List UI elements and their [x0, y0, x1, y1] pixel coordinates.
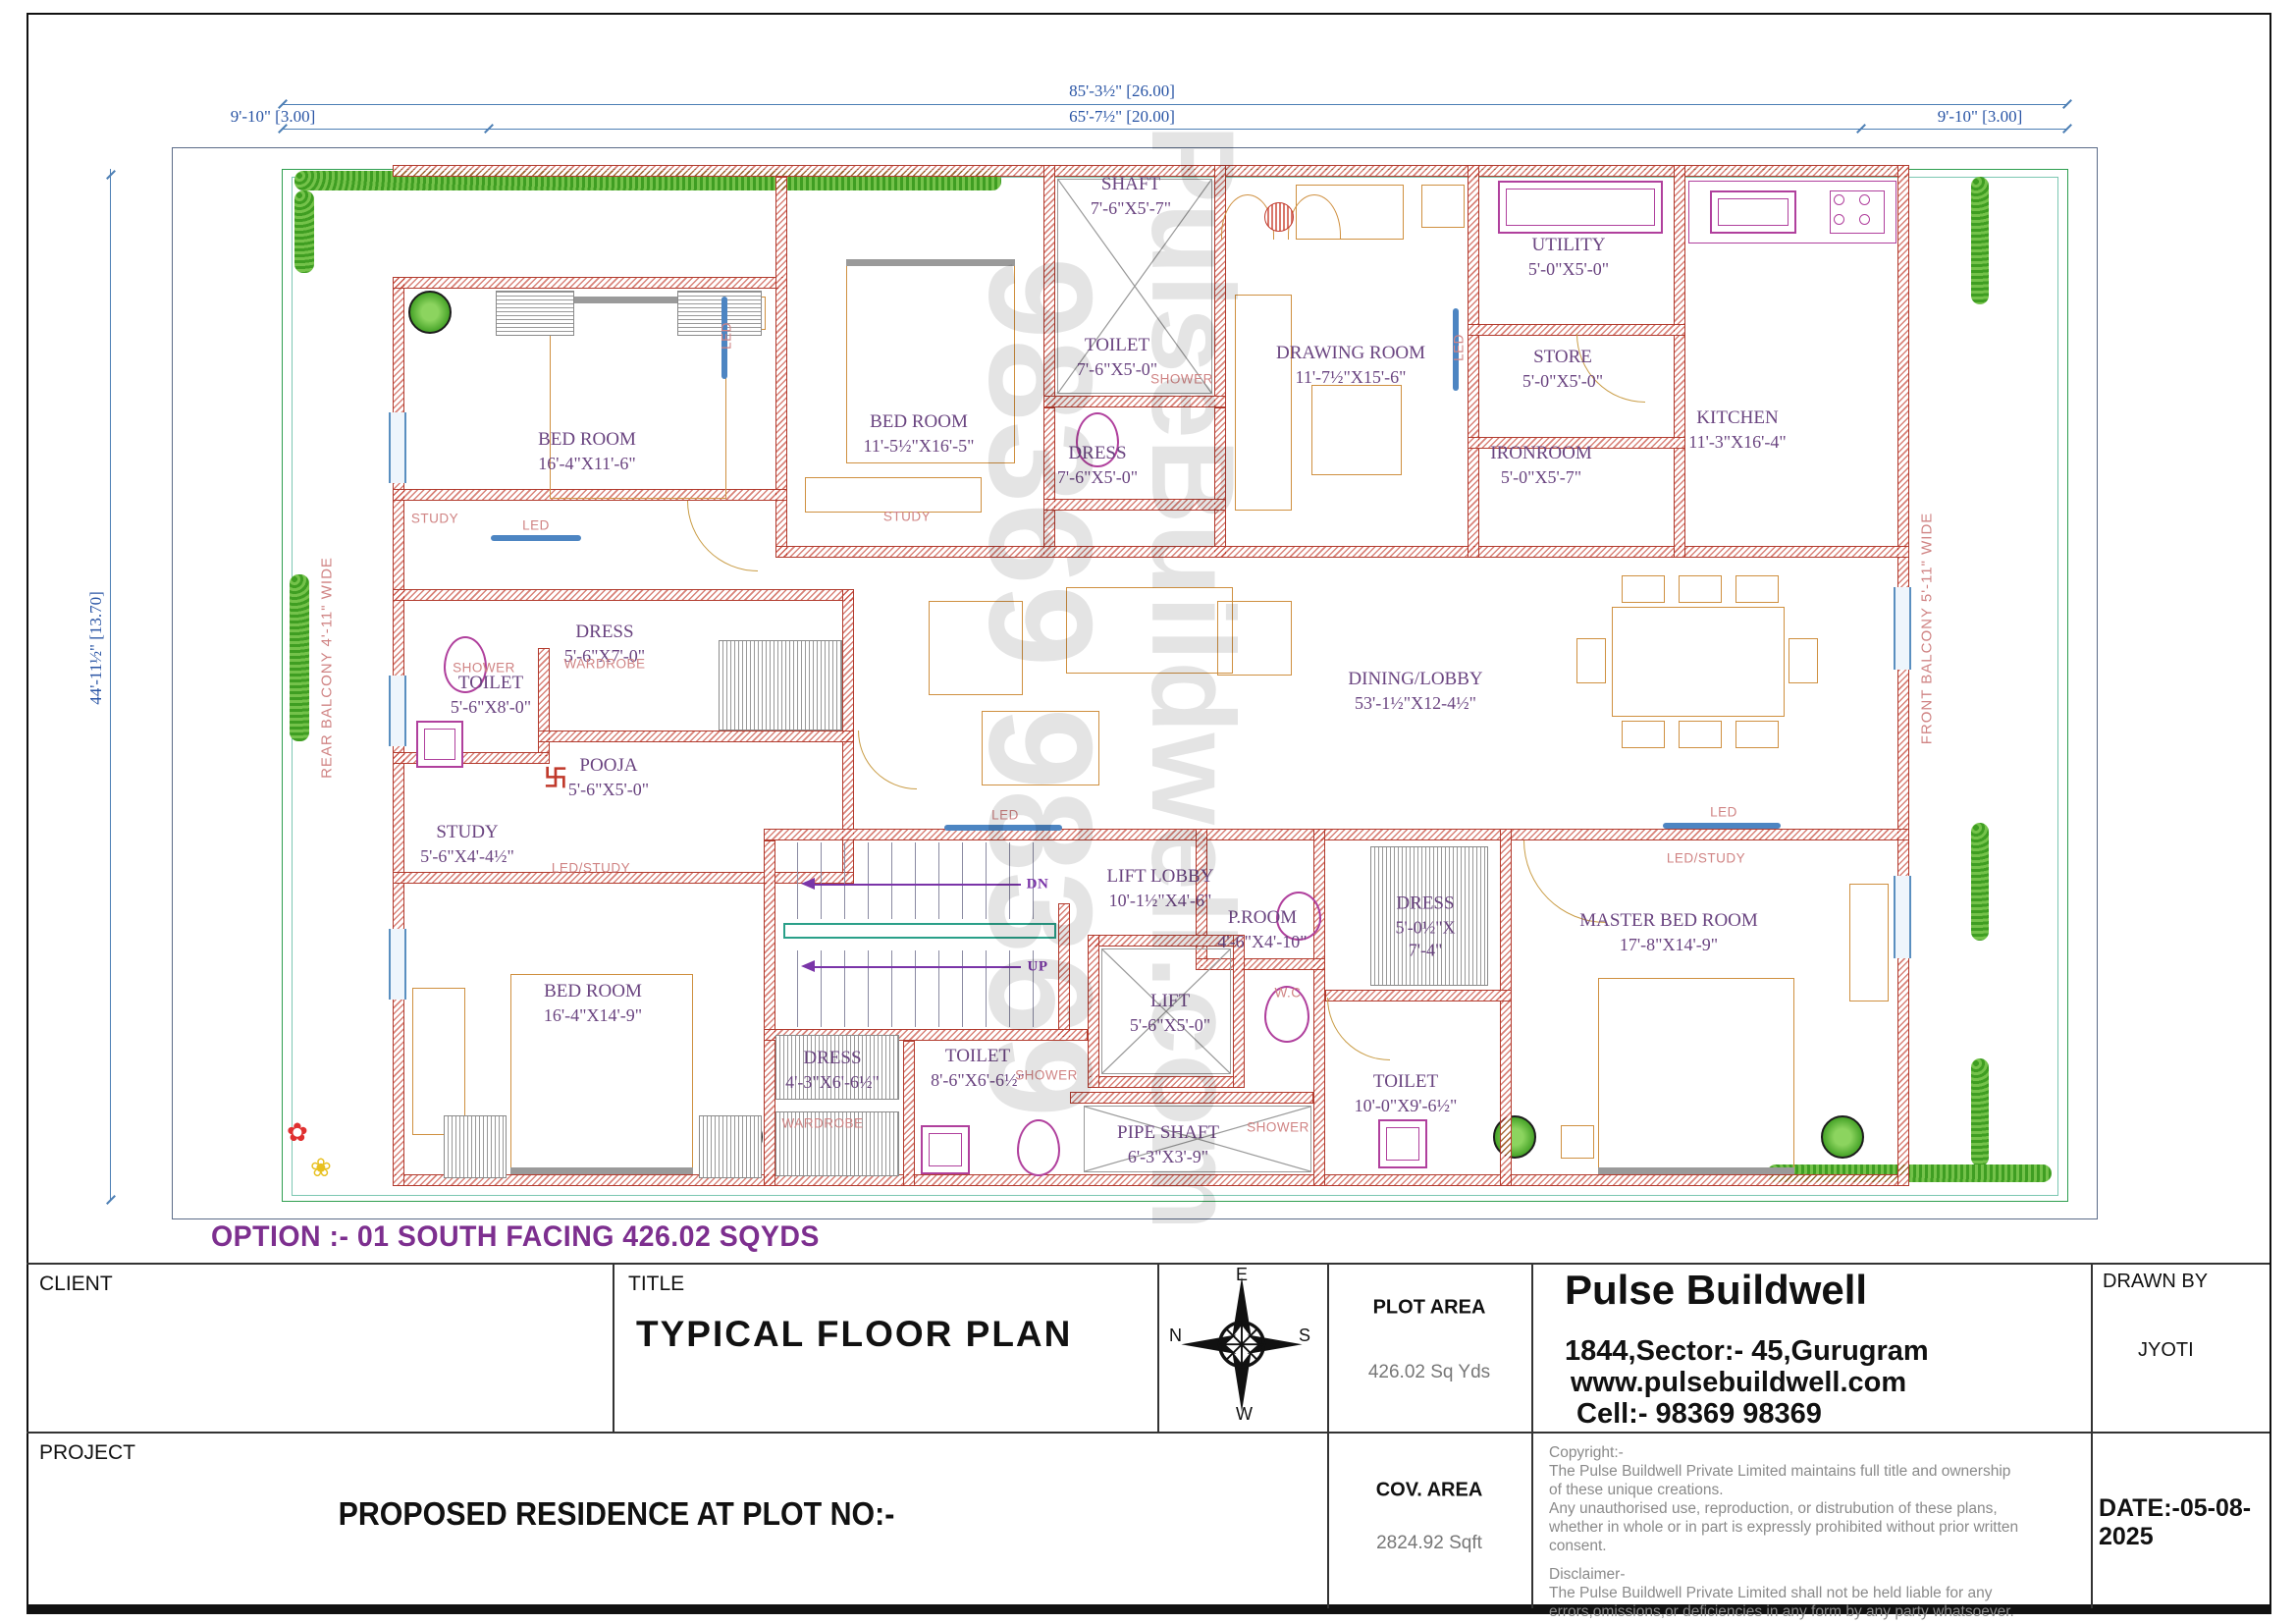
dim-line-top-outer — [282, 104, 2066, 105]
copyright-text: Copyright:-The Pulse Buildwell Private L… — [1549, 1443, 2079, 1621]
room-label: SHAFT7'-6"X5'-7" — [1091, 173, 1171, 220]
dimension-text: 85'-3½" [26.00] — [1069, 81, 1175, 101]
wall-segment — [1058, 903, 1070, 1037]
furniture — [1421, 185, 1465, 228]
dim-tick-v1 — [106, 1195, 116, 1205]
fixture-label: SHOWER — [453, 661, 515, 676]
wall-segment — [1088, 1076, 1245, 1088]
room-label: TOILET5'-6"X8'-0" — [451, 672, 531, 719]
hob-burner — [1859, 214, 1870, 225]
room-label: BED ROOM16'-4"X11'-6" — [538, 428, 636, 475]
fixture-label: LED — [1452, 334, 1467, 361]
drawn-by-label: DRAWN BY — [2103, 1271, 2208, 1293]
compass-star-icon — [1173, 1269, 1310, 1426]
stairs-up-label: UP — [1028, 959, 1048, 976]
stair-tread — [938, 842, 939, 919]
fixture-label: WARDROBE — [563, 657, 645, 672]
window — [389, 676, 406, 746]
project-label: PROJECT — [39, 1441, 135, 1465]
window — [389, 412, 406, 483]
stair-tread — [797, 950, 798, 1027]
stair-tread — [938, 950, 939, 1027]
stair-tread — [986, 950, 987, 1027]
bed-headboard — [1598, 1167, 1794, 1174]
hob-burner — [1834, 194, 1844, 205]
cov-area-value: 2824.92 Sqft — [1376, 1533, 1482, 1554]
room-label: STORE5'-0"X5'-0" — [1522, 346, 1603, 393]
stair-arrow-head — [801, 960, 815, 972]
dimension-text: 44'-11½" [13.70] — [86, 591, 106, 705]
fixture-label: LED/STUDY — [552, 861, 630, 876]
copyright-line: Copyright:- — [1549, 1443, 2079, 1462]
hedge-strip — [1971, 177, 1989, 304]
rear-balcony-label: REAR BALCONY 4'-11" WIDE — [319, 557, 336, 779]
tb-mid-line — [27, 1432, 2269, 1434]
stair-tread — [915, 842, 916, 919]
stair-tread — [868, 950, 869, 1027]
wash-basin — [1378, 1119, 1427, 1168]
drawn-by-value: JYOTI — [2138, 1339, 2194, 1362]
stairs-dn-label: DN — [1027, 877, 1049, 893]
stair-tread — [1009, 950, 1010, 1027]
dimension-text: 65'-7½" [20.00] — [1069, 107, 1175, 127]
tb-div3 — [1327, 1263, 1329, 1608]
furniture — [982, 711, 1099, 785]
room-label: DRAWING ROOM11'-7½"X15'-6" — [1276, 342, 1425, 389]
window — [389, 929, 406, 1000]
copyright-line: Any unauthorised use, reproduction, or d… — [1549, 1499, 2079, 1518]
compass-w: W — [1236, 1404, 1253, 1425]
fixture-label: LED — [991, 808, 1019, 823]
title-block: CLIENT TITLE TYPICAL FLOOR PLAN E S W N … — [0, 1263, 2296, 1608]
room-label: LIFT5'-6"X5'-0" — [1130, 990, 1210, 1037]
room-label: STUDY5'-6"X4'-4½" — [420, 821, 514, 868]
dimension-text: 9'-10" [3.00] — [1938, 107, 2023, 127]
tree-icon — [1821, 1115, 1864, 1159]
room-label: TOILET10'-0"X9'-6½" — [1355, 1070, 1458, 1117]
front-balcony-label: FRONT BALCONY 5'-11" WIDE — [1919, 513, 1936, 745]
tree-icon — [408, 291, 452, 334]
stair-tread — [844, 842, 845, 919]
project-value: PROPOSED RESIDENCE AT PLOT NO:- — [339, 1495, 895, 1533]
wardrobe-stripes — [699, 1115, 762, 1178]
room-label: BED ROOM11'-5½"X16'-5" — [863, 410, 974, 458]
room-label: P.ROOM4'-6"X4'-10" — [1217, 906, 1307, 953]
plot-area-value: 426.02 Sq Yds — [1368, 1362, 1490, 1383]
dining-chair — [1789, 638, 1818, 683]
furniture — [805, 477, 982, 513]
hedge-strip — [1971, 823, 1989, 941]
room-label: LIFT LOBBY10'-1½"X4'-6" — [1107, 865, 1214, 912]
stair-tread — [891, 950, 892, 1027]
wash-basin — [416, 721, 463, 768]
furniture — [1066, 587, 1233, 674]
tb-top-line — [27, 1263, 2269, 1265]
kitchen-sink — [1710, 190, 1796, 234]
wardrobe-stripes — [496, 291, 574, 336]
furniture — [1849, 884, 1889, 1001]
dining-chair — [1679, 575, 1722, 603]
date-value: DATE:-05-08-2025 — [2099, 1494, 2296, 1551]
wall-segment — [764, 840, 775, 1186]
wall-segment — [1214, 165, 1226, 407]
utility-sink — [1498, 181, 1663, 234]
wardrobe-stripes — [719, 640, 842, 731]
room-label: DRESS4'-3"X6'-6½" — [785, 1047, 880, 1094]
tb-div2 — [1157, 1263, 1159, 1432]
wall-segment — [1313, 829, 1325, 1186]
wall-segment — [903, 1041, 915, 1186]
stair-tread — [1009, 842, 1010, 919]
stair-tread — [986, 842, 987, 919]
window — [1894, 876, 1911, 958]
fixture-label: STUDY — [883, 510, 931, 524]
room-label: MASTER BED ROOM17'-8"X14'-9" — [1579, 909, 1758, 956]
wardrobe-stripes — [444, 1115, 507, 1178]
disclaimer-line: errors,omissions,or deficiencies in any … — [1549, 1602, 2079, 1621]
wall-segment — [393, 277, 787, 289]
client-label: CLIENT — [39, 1272, 113, 1296]
stair-tread — [821, 842, 822, 919]
tb-div4 — [1531, 1263, 1533, 1608]
wall-segment — [1500, 829, 1512, 1186]
stair-tread — [962, 950, 963, 1027]
swastika-icon: 卐 — [544, 759, 567, 793]
stair-arrow-line — [815, 966, 1021, 968]
company-website[interactable]: www.pulsebuildwell.com — [1571, 1367, 1906, 1399]
furniture — [412, 988, 465, 1135]
fixture-label: W.C — [1275, 986, 1302, 1001]
stair-tread — [797, 842, 798, 919]
flower-icon: ❀ — [310, 1155, 332, 1180]
fixture-label: SHOWER — [1015, 1068, 1078, 1083]
copyright-line: The Pulse Buildwell Private Limited main… — [1549, 1462, 2079, 1481]
hedge-strip — [1971, 1058, 1989, 1166]
room-label: DINING/LOBBY53'-1½"X12-4½" — [1348, 668, 1482, 715]
bed-headboard — [846, 259, 1015, 266]
hedge-strip — [290, 574, 309, 741]
room-label: TOILET7'-6"X5'-0" — [1077, 334, 1157, 381]
room-label: KITCHEN11'-3"X16'-4" — [1688, 406, 1787, 454]
wall-segment — [393, 1174, 1909, 1186]
fixture-label: WARDROBE — [781, 1116, 863, 1131]
plot-area-label: PLOT AREA — [1373, 1297, 1486, 1320]
wall-segment — [1674, 165, 1685, 558]
wall-segment — [538, 731, 854, 742]
wall-segment — [1897, 165, 1909, 1186]
title-label: TITLE — [628, 1272, 684, 1296]
toilet-wc-icon — [1017, 1119, 1060, 1176]
furniture — [1612, 607, 1785, 717]
room-label: DRESS5'-0½"X7'-4" — [1395, 892, 1455, 961]
stair-tread — [915, 950, 916, 1027]
room-label: DRESS7'-6"X5'-0" — [1057, 442, 1138, 489]
furniture — [1598, 978, 1794, 1174]
compass-e: E — [1236, 1265, 1248, 1285]
furniture — [1235, 295, 1292, 511]
furniture — [1561, 1125, 1594, 1159]
disclaimer-line: The Pulse Buildwell Private Limited shal… — [1549, 1584, 2079, 1602]
dim-tick-v0 — [106, 170, 116, 180]
stair-tread — [844, 950, 845, 1027]
company-cell: Cell:- 98369 98369 — [1576, 1398, 1822, 1431]
copyright-line: whether in whole or in part is expressly… — [1549, 1518, 2079, 1555]
option-label: OPTION :- 01 SOUTH FACING 426.02 SQYDS — [211, 1220, 820, 1254]
fixture-label: LED — [720, 322, 734, 350]
fixture-label: SHOWER — [1150, 372, 1213, 387]
dining-chair — [1735, 721, 1779, 748]
basin-icon — [1264, 202, 1294, 232]
disclaimer-line: Disclaimer- — [1549, 1565, 2079, 1584]
room-label: TOILET8'-6"X6'-6½" — [931, 1045, 1025, 1092]
dim-line-left — [110, 169, 111, 1200]
sheet-title: TYPICAL FLOOR PLAN — [636, 1314, 1072, 1355]
led-panel — [491, 535, 581, 541]
wall-segment — [1070, 1092, 1313, 1104]
floor-plan: ✿❀DNUP卐SHAFT7'-6"X5'-7"TOILET7'-6"X5'-0"… — [0, 0, 2296, 1267]
wall-segment — [1043, 396, 1226, 407]
stair-arrow-head — [801, 878, 815, 890]
copyright-line: of these unique creations. — [1549, 1481, 2079, 1499]
fixture-label: LED — [522, 518, 550, 533]
wall-segment — [1088, 935, 1099, 1088]
stair-arrow-line — [815, 884, 1021, 886]
dimension-text: 9'-10" [3.00] — [231, 107, 316, 127]
wall-segment — [775, 546, 1909, 558]
room-label: IRONROOM5'-0"X5'-7" — [1490, 442, 1591, 489]
bed-headboard — [510, 1167, 693, 1174]
dining-chair — [1735, 575, 1779, 603]
fixture-label: STUDY — [411, 512, 458, 526]
furniture — [1311, 385, 1402, 475]
led-panel — [1663, 823, 1781, 829]
dining-chair — [1576, 638, 1606, 683]
room-label: PIPE SHAFT6'-3"X3'-9" — [1117, 1121, 1219, 1168]
stair-tread — [821, 950, 822, 1027]
wall-segment — [1468, 165, 1479, 558]
compass-n: N — [1169, 1326, 1182, 1346]
wall-segment — [393, 589, 854, 601]
tb-div1 — [613, 1263, 614, 1432]
dining-chair — [1622, 575, 1665, 603]
dining-chair — [1679, 721, 1722, 748]
stair-rail — [783, 923, 1056, 939]
compass-s: S — [1299, 1326, 1310, 1346]
fixture-label: LED/STUDY — [1667, 851, 1745, 866]
dim-line-top-inner — [282, 129, 2066, 130]
flower-icon: ✿ — [287, 1119, 308, 1145]
hob-burner — [1859, 194, 1870, 205]
wall-segment — [1233, 935, 1245, 1088]
hedge-strip — [294, 190, 314, 273]
stair-tread — [868, 842, 869, 919]
wall-segment — [1043, 407, 1055, 558]
wall-segment — [1214, 407, 1226, 558]
fixture-label: LED — [1710, 805, 1737, 820]
room-label: UTILITY5'-0"X5'-0" — [1528, 234, 1609, 281]
wall-segment — [1043, 165, 1055, 407]
company-address: 1844,Sector:- 45,Gurugram — [1565, 1335, 1929, 1368]
tb-div5 — [2091, 1263, 2093, 1608]
room-label: POOJA5'-6"X5'-0" — [568, 754, 649, 801]
wash-basin — [921, 1125, 970, 1174]
compass-rose: E S W N — [1173, 1269, 1310, 1426]
fixture-label: SHOWER — [1247, 1120, 1309, 1135]
hob-burner — [1834, 214, 1844, 225]
room-label: BED ROOM16'-4"X14'-9" — [544, 980, 642, 1027]
led-panel — [944, 825, 1062, 831]
furniture — [929, 601, 1023, 695]
dining-chair — [1622, 721, 1665, 748]
company-name: Pulse Buildwell — [1565, 1267, 1867, 1314]
furniture — [1217, 601, 1292, 676]
cov-area-label: COV. AREA — [1376, 1480, 1483, 1502]
wall-segment — [1043, 499, 1226, 511]
stair-tread — [962, 842, 963, 919]
stair-tread — [891, 842, 892, 919]
window — [1894, 587, 1911, 670]
drawing-sheet: ✿❀DNUP卐SHAFT7'-6"X5'-7"TOILET7'-6"X5'-0"… — [0, 0, 2296, 1624]
wall-segment — [764, 829, 1909, 840]
